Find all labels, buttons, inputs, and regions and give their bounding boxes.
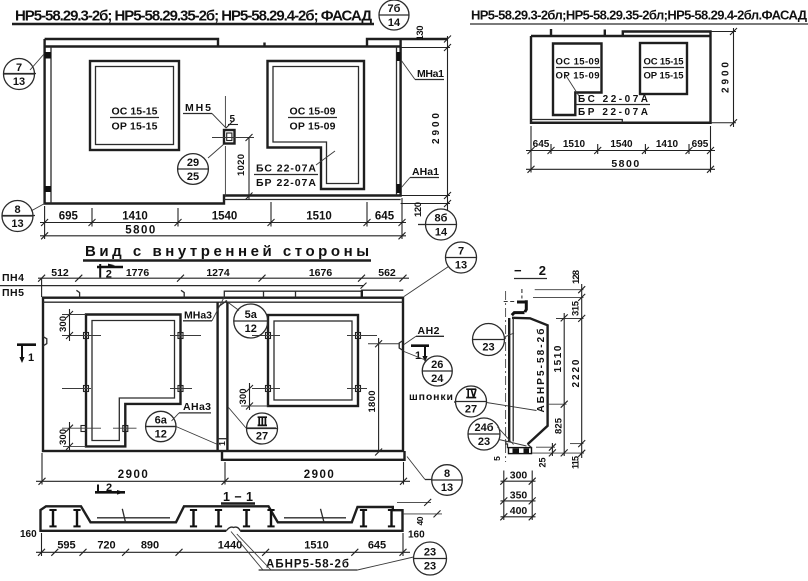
svg-text:24б: 24б [474, 422, 493, 434]
svg-text:160: 160 [408, 530, 425, 541]
svg-text:АБНР5-58-2б: АБНР5-58-2б [535, 329, 547, 413]
svg-text:40: 40 [415, 516, 425, 525]
svg-text:130: 130 [415, 26, 426, 41]
svg-text:26: 26 [431, 359, 443, 371]
svg-text:1510: 1510 [304, 540, 328, 552]
svg-text:1510: 1510 [306, 211, 332, 223]
svg-text:350: 350 [510, 490, 528, 502]
svg-text:ОР 15-09: ОР 15-09 [556, 71, 600, 82]
svg-text:300: 300 [58, 429, 69, 445]
svg-text:825: 825 [554, 417, 565, 434]
svg-text:НР5-58.29.3-2бл;НР5-58.29.35-2: НР5-58.29.3-2бл;НР5-58.29.35-2бл;НР5-58.… [471, 8, 808, 23]
svg-text:120: 120 [413, 202, 424, 217]
svg-text:БР 22-07А: БР 22-07А [578, 107, 648, 118]
svg-text:5800: 5800 [611, 158, 640, 170]
svg-text:160: 160 [20, 529, 37, 540]
svg-text:1 − 1: 1 − 1 [223, 490, 253, 504]
svg-text:ОС 15-09: ОС 15-09 [556, 57, 600, 68]
svg-text:29: 29 [187, 157, 199, 169]
svg-text:27: 27 [465, 404, 477, 416]
svg-text:2900: 2900 [304, 469, 336, 481]
svg-text:645: 645 [533, 139, 550, 150]
svg-text:7б: 7б [388, 3, 401, 15]
svg-text:1540: 1540 [212, 211, 238, 223]
svg-text:13: 13 [13, 76, 25, 88]
svg-text:720: 720 [97, 540, 115, 552]
svg-text:5800: 5800 [125, 225, 157, 237]
svg-text:2: 2 [106, 269, 112, 281]
svg-text:1410: 1410 [122, 211, 148, 223]
svg-text:1: 1 [217, 441, 227, 446]
svg-text:13: 13 [11, 218, 23, 230]
svg-text:АН2: АН2 [418, 325, 440, 337]
svg-text:1540: 1540 [610, 139, 633, 150]
svg-text:АБНР5-58-2б: АБНР5-58-2б [266, 559, 349, 571]
svg-text:2900: 2900 [118, 469, 150, 481]
svg-text:Вид с внутренней стороны: Вид с внутренней стороны [85, 243, 369, 260]
svg-text:6а: 6а [155, 415, 168, 427]
svg-text:645: 645 [368, 540, 386, 552]
svg-text:− 2: − 2 [514, 263, 546, 278]
svg-text:ОС 15-15: ОС 15-15 [112, 106, 158, 118]
svg-text:8: 8 [14, 204, 20, 216]
svg-text:23: 23 [482, 342, 494, 354]
svg-text:ПН4: ПН4 [2, 272, 24, 284]
svg-text:2220: 2220 [571, 359, 582, 387]
svg-text:шпонки: шпонки [409, 391, 453, 403]
svg-text:БС 22-07А: БС 22-07А [578, 94, 648, 105]
svg-text:7: 7 [16, 62, 22, 74]
svg-text:8б: 8б [435, 213, 448, 225]
svg-text:23: 23 [424, 561, 436, 573]
svg-text:115: 115 [571, 456, 581, 469]
svg-text:5а: 5а [245, 309, 258, 321]
svg-text:ОС 15-09: ОС 15-09 [290, 106, 336, 118]
svg-text:1020: 1020 [236, 154, 247, 176]
svg-text:25: 25 [537, 458, 547, 468]
svg-text:1676: 1676 [309, 267, 333, 279]
svg-text:2: 2 [106, 482, 112, 494]
svg-text:695: 695 [692, 139, 709, 150]
svg-text:315: 315 [570, 300, 581, 316]
svg-text:13: 13 [441, 482, 453, 494]
svg-text:13: 13 [455, 260, 467, 272]
svg-text:645: 645 [375, 211, 395, 223]
svg-text:25: 25 [187, 171, 199, 183]
svg-text:МНа1: МНа1 [417, 68, 444, 80]
svg-text:БР 22-07А: БР 22-07А [256, 177, 316, 189]
svg-text:НР5-58.29.3-2б; НР5-58.29.35-2: НР5-58.29.3-2б; НР5-58.29.35-2б; НР5-58.… [15, 8, 372, 25]
svg-text:12: 12 [245, 323, 257, 335]
svg-text:23: 23 [424, 547, 436, 559]
svg-text:300: 300 [510, 470, 528, 482]
svg-text:ОР 15-15: ОР 15-15 [112, 121, 158, 133]
svg-text:27: 27 [256, 431, 268, 443]
svg-text:БС 22-07А: БС 22-07А [256, 163, 316, 175]
svg-text:1510: 1510 [563, 139, 586, 150]
svg-text:1510: 1510 [553, 345, 564, 372]
svg-text:12: 12 [155, 429, 167, 441]
svg-text:23: 23 [478, 436, 490, 448]
svg-text:1274: 1274 [206, 267, 230, 279]
svg-text:ОС 15-15: ОС 15-15 [644, 57, 685, 68]
svg-text:АНа3: АНа3 [183, 401, 211, 413]
svg-text:562: 562 [378, 267, 396, 279]
svg-text:ОР 15-09: ОР 15-09 [290, 121, 336, 133]
svg-text:7: 7 [458, 246, 464, 258]
svg-text:695: 695 [59, 211, 79, 223]
svg-text:1: 1 [28, 352, 34, 364]
svg-text:ОР 15-15: ОР 15-15 [644, 71, 685, 82]
svg-text:128: 128 [571, 270, 582, 284]
svg-text:595: 595 [57, 540, 75, 552]
svg-text:ПН5: ПН5 [2, 287, 24, 299]
svg-text:1410: 1410 [656, 139, 679, 150]
svg-text:1776: 1776 [126, 267, 150, 279]
svg-text:5: 5 [492, 456, 502, 461]
svg-text:24: 24 [431, 373, 444, 385]
svg-text:14: 14 [388, 17, 401, 29]
svg-text:400: 400 [510, 505, 528, 517]
svg-text:МНа3: МНа3 [184, 310, 212, 322]
svg-text:8: 8 [444, 468, 450, 480]
svg-text:14: 14 [435, 227, 448, 239]
svg-text:512: 512 [51, 267, 69, 279]
svg-text:АНа1: АНа1 [412, 166, 439, 178]
svg-text:300: 300 [238, 389, 249, 405]
svg-text:300: 300 [58, 316, 69, 332]
svg-text:890: 890 [141, 540, 159, 552]
svg-text:1800: 1800 [367, 391, 378, 413]
svg-text:МН5: МН5 [185, 102, 211, 114]
